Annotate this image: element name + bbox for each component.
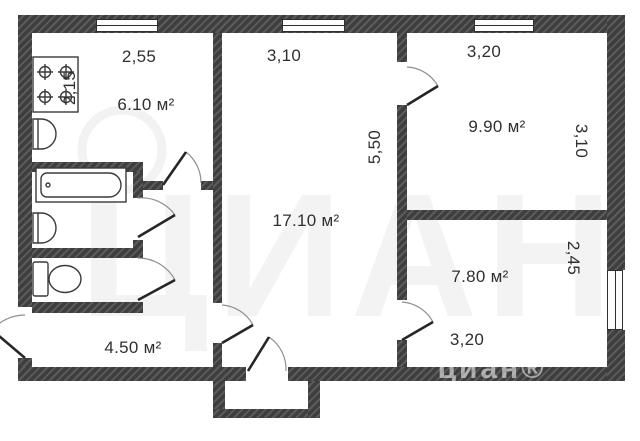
bedroom-top-area-label: 9.90 м² (468, 117, 525, 137)
bathroom-door-leaf (138, 215, 175, 237)
living-width-dimension: 3,10 (267, 46, 301, 66)
toilet-door-leaf (138, 280, 175, 300)
bedroom-top-door-arc (407, 67, 438, 86)
hallway-living-door-arc (222, 305, 253, 325)
kitchen-width-dimension: 2,55 (122, 47, 156, 67)
kitchen-area-label: 6.10 м² (117, 95, 174, 115)
bedroom-bottom-door-leaf (402, 322, 433, 340)
living-depth-dimension: 5,50 (365, 130, 385, 164)
bedroom-bottom-door-arc (402, 302, 433, 322)
bedroom-top-door-leaf (407, 86, 438, 105)
hallway-living-door-leaf (222, 325, 253, 343)
vestibule-door-leaf (248, 337, 269, 371)
entrance-door-arc (0, 315, 25, 330)
living-area-label: 17.10 м² (272, 211, 339, 231)
vestibule-door-arc (269, 337, 286, 371)
kitchen-depth-dimension: 2,15 (60, 71, 80, 105)
toilet-icon (33, 262, 81, 296)
watermark-small: циан® (438, 352, 547, 386)
toilet-door-arc (138, 258, 175, 280)
bedroom-right-window (607, 270, 623, 330)
bathroom-sink-icon (33, 213, 56, 243)
kitchen-sink-icon (33, 119, 56, 149)
bedroom-top-depth-dimension: 3,10 (571, 124, 591, 158)
hallway-area-label: 4.50 м² (104, 338, 161, 358)
kitchen-door-leaf (163, 152, 186, 185)
bedroom-bottom-area-label: 7.80 м² (451, 267, 508, 287)
bedroom-bottom-width-dimension: 3,20 (450, 330, 484, 350)
living-window (282, 19, 345, 32)
bedroom-bottom-depth-dimension: 2,45 (563, 241, 583, 275)
entrance-door-leaf (0, 330, 25, 358)
kitchen-window (96, 19, 158, 32)
bathtub-icon (36, 168, 126, 202)
bedroom-top-window (474, 19, 534, 32)
bathroom-door-arc (138, 198, 175, 215)
kitchen-door-arc (186, 152, 201, 183)
bedroom-top-width-dimension: 3,20 (467, 42, 501, 62)
floor-plan: ЦИАН (0, 0, 640, 441)
